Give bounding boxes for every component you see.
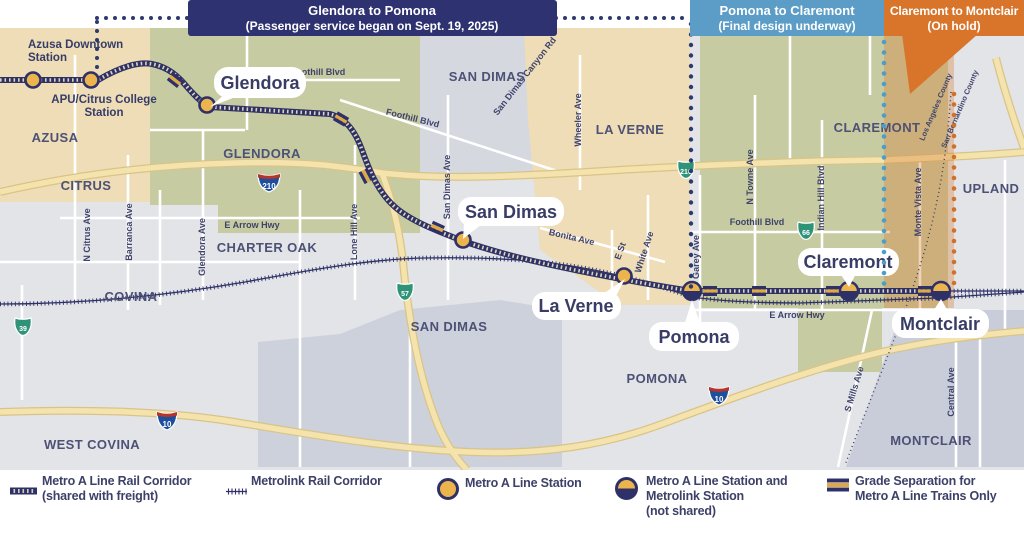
- station-label-apu-citrus-line2: Station: [85, 107, 124, 119]
- legend-grade-separation-line1: Grade Separation for: [855, 474, 997, 489]
- legend: Metro A Line Rail Corridor (shared with …: [0, 470, 1024, 533]
- street-label-monte-vista: Monte Vista Ave: [913, 168, 923, 237]
- svg-text:10: 10: [163, 420, 172, 429]
- city-label-san-dimas-north: SAN DIMAS: [449, 69, 526, 84]
- city-label-charter-oak: CHARTER OAK: [217, 240, 318, 255]
- svg-text:66: 66: [802, 230, 810, 237]
- station-marker-glendora: [200, 98, 215, 113]
- station-label-azusa-downtown-line2: Station: [28, 52, 67, 64]
- legend-a-line-station-swatch: [437, 478, 459, 500]
- city-label-west-covina: WEST COVINA: [44, 437, 140, 452]
- banner-glendora-pomona-subtitle: (Passenger service began on Sept. 19, 20…: [246, 19, 499, 33]
- street-label-central: Central Ave: [946, 367, 956, 416]
- legend-grade-separation-label: Grade Separation for Metro A Line Trains…: [855, 474, 997, 504]
- banner-claremont-montclair-title: Claremont to Montclair: [890, 4, 1019, 18]
- street-label-n-citrus: N Citrus Ave: [82, 208, 92, 261]
- city-label-upland: UPLAND: [963, 181, 1020, 196]
- station-label-apu-citrus-line1: APU/Citrus College: [51, 94, 156, 106]
- street-label-indian-hill: Indian Hill Blvd: [816, 165, 826, 230]
- station-marker-apu-citrus: [84, 73, 99, 88]
- city-label-san-dimas-south: SAN DIMAS: [411, 319, 488, 334]
- legend-shared-station-line1: Metro A Line Station and: [646, 474, 788, 489]
- legend-shared-station-line3: (not shared): [646, 504, 788, 519]
- legend-a-line-corridor-line2: (shared with freight): [42, 489, 191, 504]
- banner-glendora-pomona-title: Glendora to Pomona: [308, 3, 437, 18]
- street-label-wheeler: Wheeler Ave: [573, 93, 583, 146]
- city-label-azusa: AZUSA: [32, 130, 79, 145]
- street-label-barranca: Barranca Ave: [124, 203, 134, 260]
- city-label-pomona: POMONA: [627, 371, 688, 386]
- banner-claremont-montclair: Claremont to Montclair (On hold): [884, 0, 1024, 36]
- street-label-n-towne: N Towne Ave: [745, 149, 755, 204]
- city-label-covina: COVINA: [105, 289, 158, 304]
- bubble-label-pomona: Pomona: [658, 327, 730, 347]
- legend-metrolink-label: Metrolink Rail Corridor: [251, 474, 382, 489]
- legend-grade-separation-line2: Metro A Line Trains Only: [855, 489, 997, 504]
- svg-text:10: 10: [715, 395, 724, 404]
- banner-claremont-montclair-subtitle: (On hold): [927, 19, 980, 33]
- city-label-la-verne: LA VERNE: [596, 122, 664, 137]
- street-label-foothill-east: Foothill Blvd: [730, 217, 785, 227]
- station-marker-la-verne: [617, 269, 632, 284]
- banner-pomona-claremont: Pomona to Claremont (Final design underw…: [690, 0, 884, 36]
- legend-shared-station-swatch: [615, 477, 638, 500]
- street-label-san-dimas-ave: San Dimas Ave: [442, 155, 452, 219]
- transit-map: Foothill Blvd Foothill Blvd Foothill Blv…: [0, 0, 1024, 470]
- city-label-citrus: CITRUS: [61, 178, 112, 193]
- station-marker-azusa-downtown: [26, 73, 41, 88]
- svg-text:39: 39: [19, 326, 27, 333]
- svg-text:57: 57: [401, 291, 409, 298]
- bubble-label-claremont: Claremont: [803, 252, 892, 272]
- bubble-label-montclair: Montclair: [900, 314, 980, 334]
- street-label-e-arrow-east: E Arrow Hwy: [769, 310, 824, 320]
- legend-shared-station-line2: Metrolink Station: [646, 489, 788, 504]
- svg-text:210: 210: [262, 182, 276, 191]
- legend-grade-separation-swatch: [827, 478, 849, 497]
- bubble-label-la-verne: La Verne: [538, 296, 613, 316]
- banner-glendora-pomona: Glendora to Pomona (Passenger service be…: [188, 0, 557, 36]
- street-label-e-arrow-west: E Arrow Hwy: [224, 220, 279, 230]
- banner-pomona-claremont-subtitle: (Final design underway): [718, 19, 855, 33]
- station-marker-montclair: [932, 282, 950, 300]
- city-label-glendora: GLENDORA: [223, 146, 301, 161]
- legend-a-line-corridor-swatch: [10, 482, 37, 500]
- legend-metrolink-swatch: [226, 483, 247, 501]
- legend-shared-station-label: Metro A Line Station and Metrolink Stati…: [646, 474, 788, 519]
- legend-a-line-corridor-label: Metro A Line Rail Corridor (shared with …: [42, 474, 191, 504]
- bubble-label-glendora: Glendora: [220, 73, 300, 93]
- banner-pomona-claremont-title: Pomona to Claremont: [719, 3, 855, 18]
- street-label-lone-hill: Lone Hill Ave: [349, 204, 359, 260]
- street-label-garey: Garey Ave: [691, 235, 701, 279]
- city-label-montclair: MONTCLAIR: [890, 433, 972, 448]
- legend-a-line-station-label: Metro A Line Station: [465, 476, 582, 491]
- bubble-label-san-dimas: San Dimas: [465, 202, 557, 222]
- station-label-azusa-downtown-line1: Azusa Downtown: [28, 39, 123, 51]
- city-label-claremont: CLAREMONT: [834, 120, 921, 135]
- street-label-glendora-ave: Glendora Ave: [197, 218, 207, 276]
- legend-a-line-corridor-line1: Metro A Line Rail Corridor: [42, 474, 191, 489]
